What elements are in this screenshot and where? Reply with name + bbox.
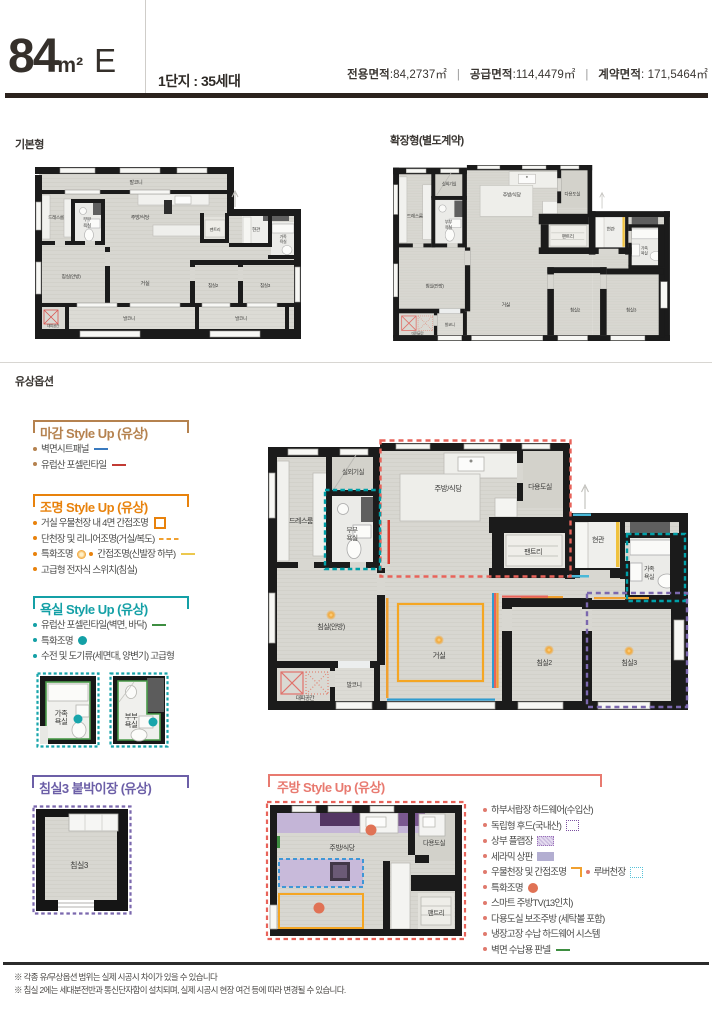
svg-text:팬트리: 팬트리: [428, 908, 445, 917]
svg-text:발코니: 발코니: [130, 179, 143, 186]
svg-text:침실3: 침실3: [70, 860, 89, 870]
svg-text:욕실: 욕실: [280, 238, 287, 244]
svg-text:욕실: 욕실: [125, 719, 138, 729]
svg-text:침실(안방): 침실(안방): [61, 273, 81, 280]
svg-text:침실2: 침실2: [208, 282, 219, 288]
svg-text:팬트리: 팬트리: [210, 226, 221, 233]
svg-text:욕실: 욕실: [83, 222, 91, 229]
svg-text:발코니: 발코니: [235, 315, 247, 322]
svg-text:대피공간: 대피공간: [47, 323, 60, 328]
svg-text:현관: 현관: [252, 226, 261, 232]
svg-text:거실: 거실: [141, 279, 150, 287]
svg-text:주방/식당: 주방/식당: [329, 843, 355, 852]
svg-text:드레스룸: 드레스룸: [48, 214, 64, 221]
svg-text:침실3: 침실3: [260, 282, 271, 288]
svg-text:발코니: 발코니: [123, 315, 135, 322]
svg-text:다용도실: 다용도실: [423, 838, 445, 847]
svg-text:욕실: 욕실: [55, 716, 68, 726]
svg-text:주방/식당: 주방/식당: [131, 214, 150, 221]
